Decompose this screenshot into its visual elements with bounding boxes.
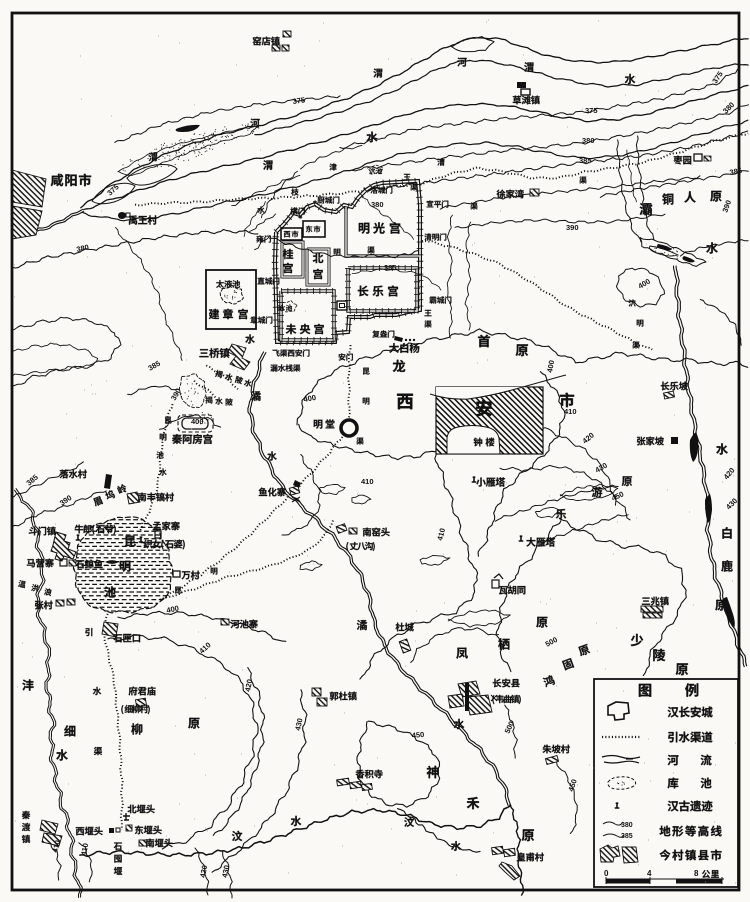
svg-text:410: 410 — [564, 407, 577, 416]
svg-text:400: 400 — [191, 417, 204, 426]
svg-text:380: 380 — [621, 822, 633, 829]
svg-text:380: 380 — [582, 136, 595, 145]
svg-text:375: 375 — [585, 106, 598, 115]
svg-text:450: 450 — [411, 730, 424, 740]
svg-text:380: 380 — [371, 200, 384, 209]
svg-text:4: 4 — [647, 869, 652, 878]
svg-text:8: 8 — [694, 869, 699, 878]
svg-text:385: 385 — [621, 833, 633, 840]
svg-text:375: 375 — [292, 95, 306, 106]
svg-text:385: 385 — [579, 156, 592, 165]
svg-text:385: 385 — [384, 263, 397, 272]
svg-text:0: 0 — [604, 869, 609, 878]
svg-text:390: 390 — [566, 223, 579, 232]
svg-text:410: 410 — [361, 477, 374, 486]
